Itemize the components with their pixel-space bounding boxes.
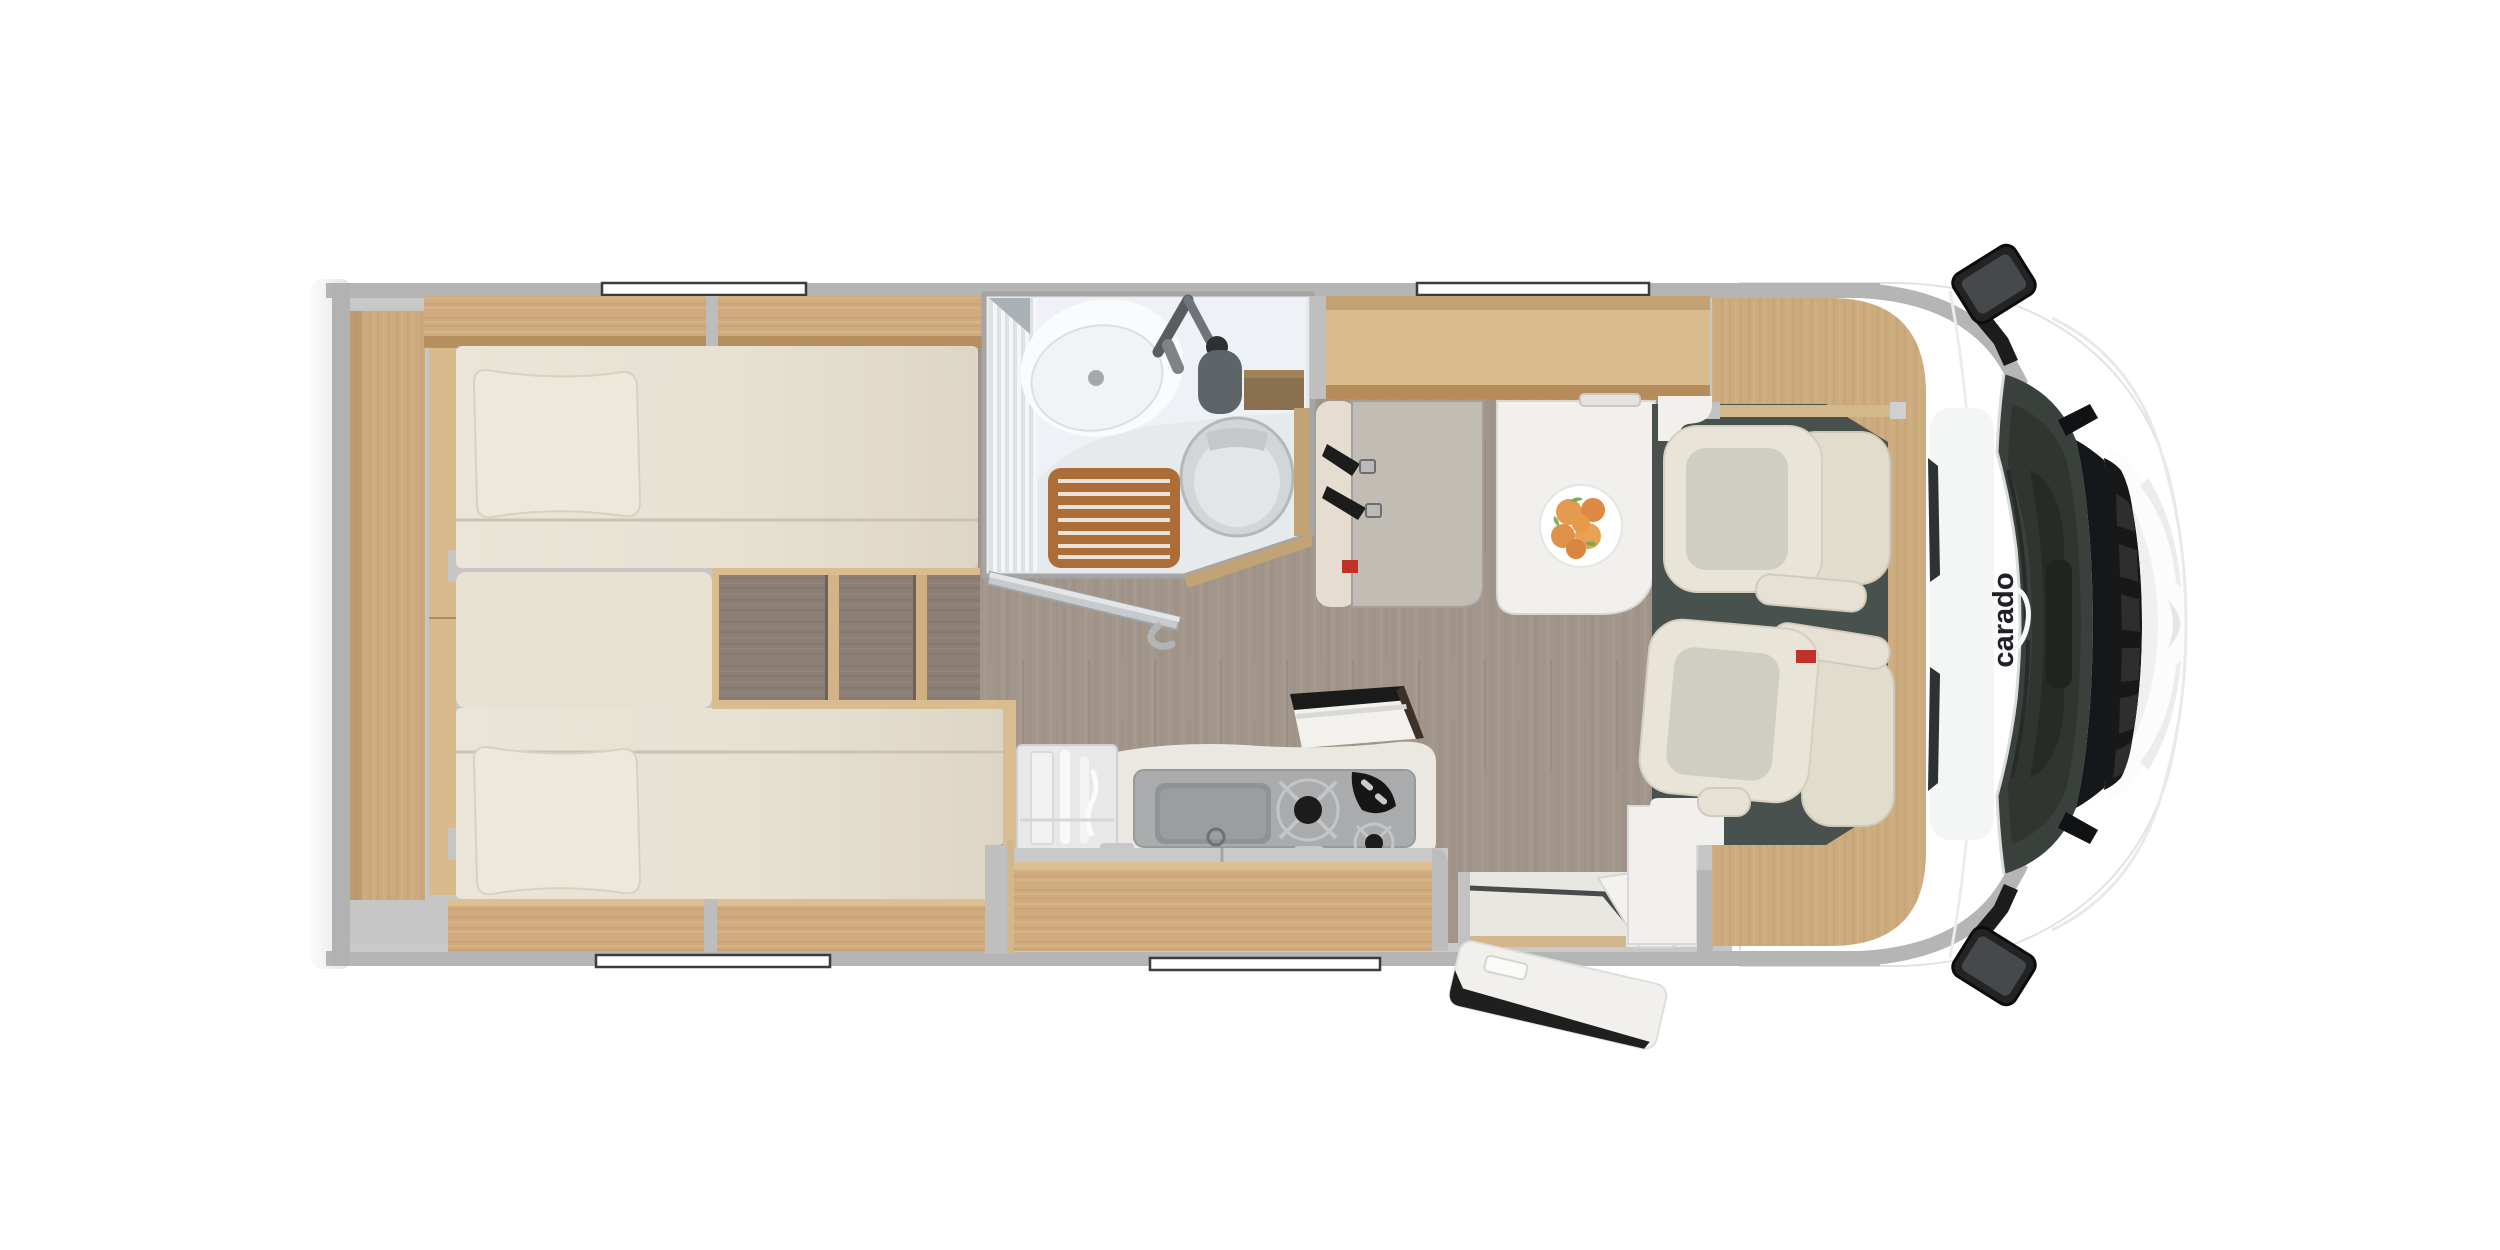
svg-text:carado: carado [1988, 572, 2020, 667]
